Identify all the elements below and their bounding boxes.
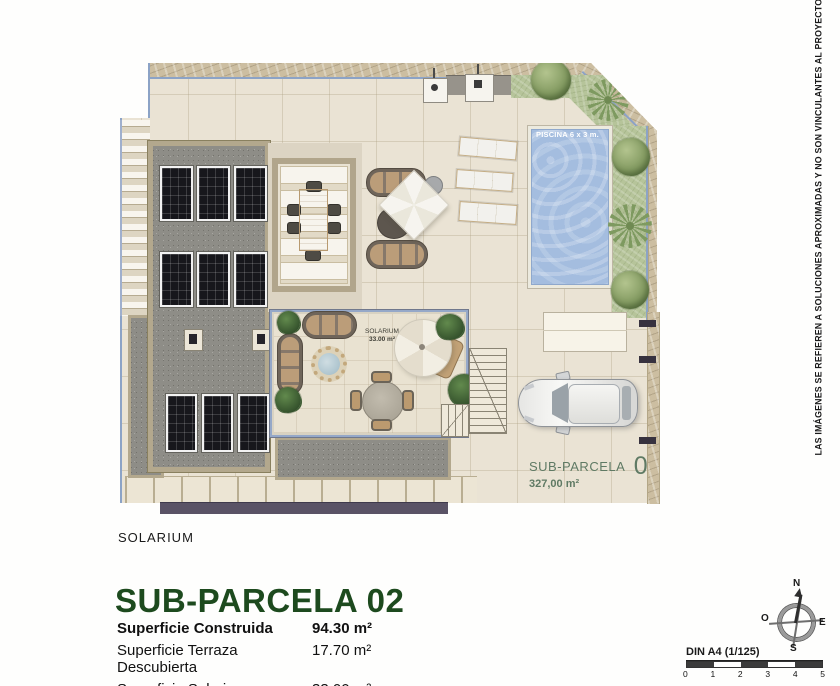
wall-stub (639, 356, 656, 363)
area-row: Superficie Solarium 33.00 m² (117, 681, 377, 686)
landing (543, 312, 627, 352)
scale-tick: 3 (765, 669, 770, 679)
car-roof (568, 384, 620, 424)
scale-tick: 5 (820, 669, 825, 679)
shower-tray (465, 74, 494, 102)
louver-screen-left (120, 120, 150, 316)
staircase-turn (441, 404, 469, 437)
dining-table (299, 189, 328, 251)
round-table (362, 381, 404, 423)
solar-panel (234, 252, 267, 307)
shower-pipe (433, 68, 435, 78)
disclaimer-text: LAS IMÁGENES SE REFIEREN A SOLUCIONES AP… (814, 6, 829, 456)
solar-panel (238, 394, 269, 452)
shrub (277, 311, 300, 334)
scale-segment (768, 662, 795, 667)
area-row: Superficie Construida 94.30 m² (117, 620, 377, 637)
sun-lounger (455, 169, 513, 192)
scale-bar: DIN A4 (1/125) 0 1 2 3 4 5 (686, 646, 836, 682)
solar-panel (197, 252, 230, 307)
shower-pipe (477, 64, 479, 74)
area-value: 17.70 m² (312, 642, 371, 676)
scale-segment (741, 662, 768, 667)
floor-plan-sheet: PISCINA 6 x 3 m. (0, 0, 840, 686)
boundary-wall-bottom (160, 502, 448, 514)
compass-east-label: E (819, 617, 826, 628)
tree (612, 138, 650, 176)
gravel-strip-south (275, 437, 451, 480)
solar-panel (234, 166, 267, 221)
scale-bar-ticks: 0 1 2 3 4 5 (683, 669, 825, 679)
scale-bar-label: DIN A4 (1/125) (686, 646, 836, 658)
area-table: Superficie Construida 94.30 m² Superfici… (117, 620, 377, 686)
scale-segment (687, 662, 714, 667)
palm-tree (608, 204, 652, 248)
solar-panel (166, 394, 197, 452)
dining-chair (305, 250, 321, 261)
compass-north-label: N (793, 578, 800, 589)
scale-tick: 0 (683, 669, 688, 679)
solarium-chair (402, 390, 414, 411)
area-label: Superficie Construida (117, 620, 312, 637)
solarium-chair (371, 371, 392, 383)
area-label: Superficie Terraza Descubierta (117, 642, 312, 676)
dining-chair (327, 204, 341, 216)
area-value: 94.30 m² (312, 620, 372, 637)
scale-segment (795, 662, 822, 667)
area-value: 33.00 m² (312, 681, 371, 686)
pool (528, 126, 612, 288)
solar-panel (202, 394, 233, 452)
pool-label: PISCINA 6 x 3 m. (536, 130, 599, 139)
caption-solarium: SOLARIUM (118, 530, 194, 545)
scale-bar-segments (686, 661, 823, 668)
outdoor-sofa (366, 240, 428, 269)
parcel-label: SUB-PARCELA (529, 459, 625, 474)
solar-panel (160, 252, 193, 307)
scale-tick: 1 (710, 669, 715, 679)
roof-vent-grille (189, 334, 197, 344)
page-title: SUB-PARCELA 02 (115, 582, 404, 620)
tree (611, 271, 649, 309)
shrub (436, 314, 464, 340)
solarium-chair (350, 390, 362, 411)
sun-lounger (458, 137, 517, 161)
solar-panel (197, 166, 230, 221)
parasol-pole (419, 344, 425, 350)
spa-water (318, 353, 340, 375)
shower-drain-icon (431, 84, 438, 91)
wall-stub (639, 437, 656, 444)
shrub (275, 387, 301, 413)
scale-tick: 2 (738, 669, 743, 679)
shower-fixture-icon (474, 80, 482, 88)
solarium-sofa (277, 333, 303, 395)
landing-step-line (543, 330, 627, 331)
staircase (469, 348, 507, 434)
edge-line-left-upper (148, 63, 150, 118)
parcel-label-block: SUB-PARCELA 02 327,00 m² (529, 452, 662, 490)
louver-screen-bottom (125, 476, 477, 503)
dining-chair (327, 222, 341, 234)
solarium-chair (371, 419, 392, 431)
area-label: Superficie Solarium (117, 681, 312, 686)
solar-panel (160, 166, 193, 221)
palm-tree (587, 79, 629, 121)
roof-vent-grille (257, 334, 265, 344)
sun-lounger (458, 201, 517, 225)
wall-stub (639, 320, 656, 327)
tree (531, 60, 571, 100)
scale-tick: 4 (793, 669, 798, 679)
boundary-wall-right (647, 312, 660, 504)
solarium-sofa (302, 311, 357, 339)
scale-segment (714, 662, 741, 667)
car-rear-window (622, 386, 631, 420)
area-row: Superficie Terraza Descubierta 17.70 m² (117, 642, 377, 676)
compass-west-label: O (761, 613, 769, 624)
